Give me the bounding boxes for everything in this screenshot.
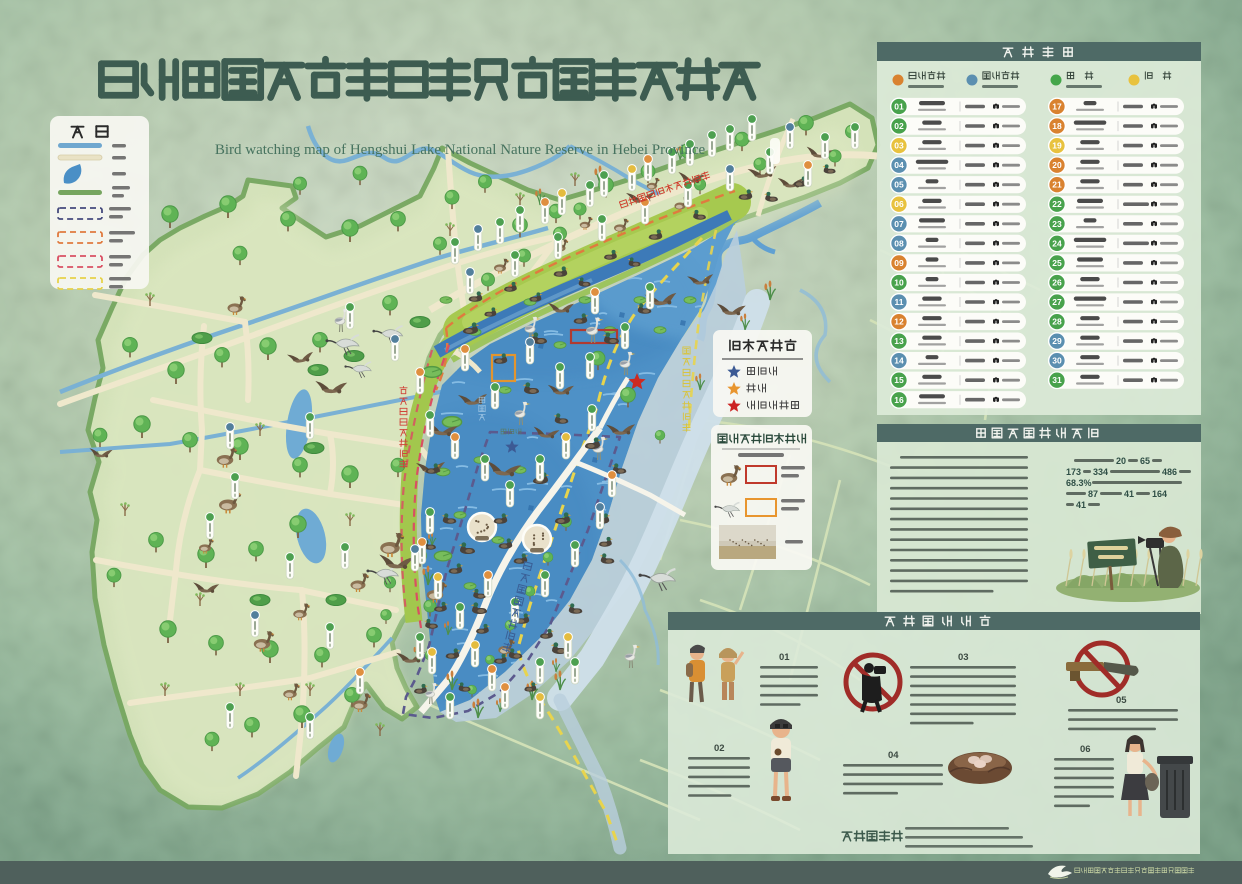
svg-text:05: 05	[894, 180, 904, 190]
svg-text:19: 19	[1052, 141, 1062, 151]
svg-text:30: 30	[1052, 356, 1062, 366]
svg-text:21: 21	[1052, 180, 1062, 190]
svg-text:01: 01	[779, 652, 790, 663]
svg-text:06: 06	[894, 199, 904, 209]
svg-text:04: 04	[894, 160, 904, 170]
svg-text:17: 17	[1052, 102, 1062, 112]
svg-text:486: 486	[1162, 467, 1177, 477]
svg-text:20: 20	[1116, 456, 1126, 466]
svg-text:14: 14	[894, 356, 904, 366]
svg-text:22: 22	[1052, 199, 1062, 209]
svg-text:06: 06	[1080, 744, 1091, 755]
svg-text:27: 27	[1052, 297, 1062, 307]
svg-text:23: 23	[1052, 219, 1062, 229]
svg-text:25: 25	[1052, 258, 1062, 268]
svg-text:02: 02	[714, 743, 725, 754]
svg-text:15: 15	[894, 375, 904, 385]
svg-text:12: 12	[894, 317, 904, 327]
svg-text:03: 03	[958, 652, 969, 663]
svg-text:02: 02	[894, 121, 904, 131]
svg-text:31: 31	[1052, 375, 1062, 385]
svg-text:Bird watching map of Hengshui: Bird watching map of Hengshui Lake Natio…	[215, 142, 706, 158]
svg-text:20: 20	[1052, 160, 1062, 170]
svg-text:11: 11	[895, 297, 904, 307]
svg-text:09: 09	[894, 258, 904, 268]
svg-text:173: 173	[1066, 467, 1081, 477]
svg-text:164: 164	[1152, 489, 1167, 499]
svg-text:24: 24	[1052, 238, 1062, 248]
svg-text:10: 10	[894, 278, 904, 288]
svg-text:334: 334	[1093, 467, 1108, 477]
svg-text:68.3%: 68.3%	[1066, 478, 1092, 488]
svg-text:18: 18	[1052, 121, 1062, 131]
svg-text:28: 28	[1052, 317, 1062, 327]
svg-text:29: 29	[1052, 336, 1062, 346]
svg-text:65: 65	[1140, 456, 1150, 466]
svg-text:04: 04	[888, 750, 899, 761]
svg-text:05: 05	[1116, 695, 1127, 706]
svg-text:08: 08	[894, 238, 904, 248]
svg-text:41: 41	[1076, 500, 1086, 510]
svg-text:87: 87	[1088, 489, 1098, 499]
svg-text:41: 41	[1124, 489, 1134, 499]
svg-text:03: 03	[894, 141, 904, 151]
svg-text:16: 16	[894, 395, 904, 405]
svg-text:13: 13	[894, 336, 904, 346]
svg-text:01: 01	[894, 102, 904, 112]
svg-text:26: 26	[1052, 278, 1062, 288]
svg-text:07: 07	[894, 219, 904, 229]
